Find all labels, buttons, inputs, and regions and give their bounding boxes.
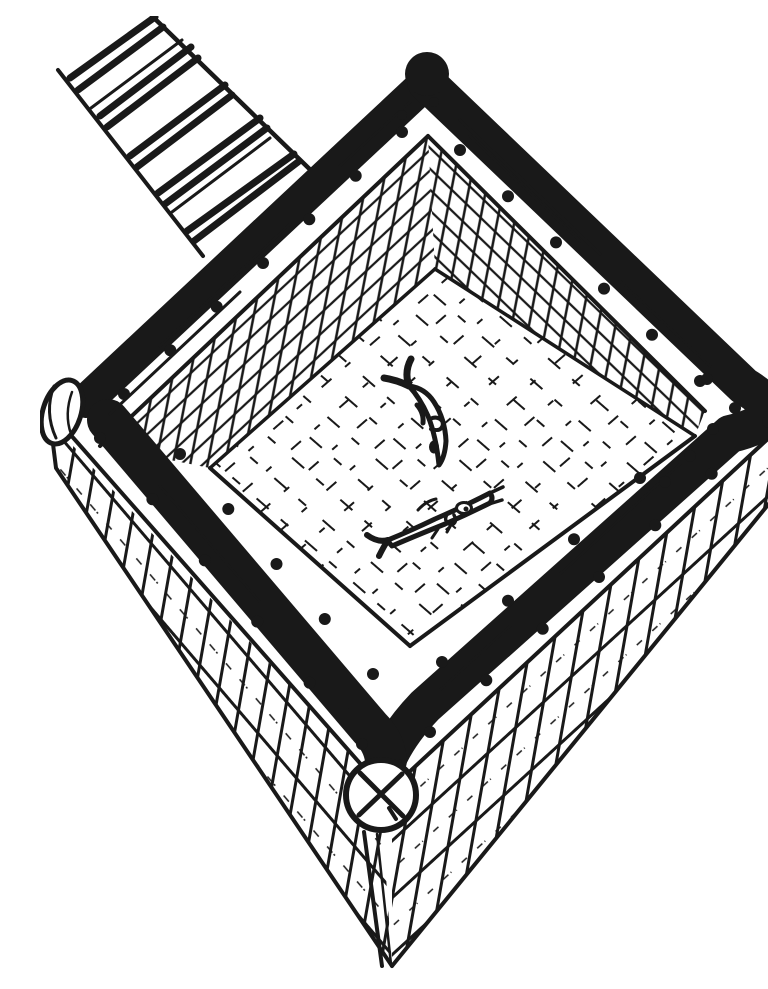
walkway-slats	[70, 17, 298, 241]
sketch-canvas: Hand-drawn fish cage illustration	[40, 16, 768, 973]
fish-1-eye	[429, 441, 439, 454]
log-end-bottom	[346, 760, 416, 830]
illustration-fish-cage: Hand-drawn fish cage illustration	[40, 16, 768, 973]
rim-corner-north	[405, 52, 449, 96]
walkway-left-rail	[58, 70, 203, 256]
